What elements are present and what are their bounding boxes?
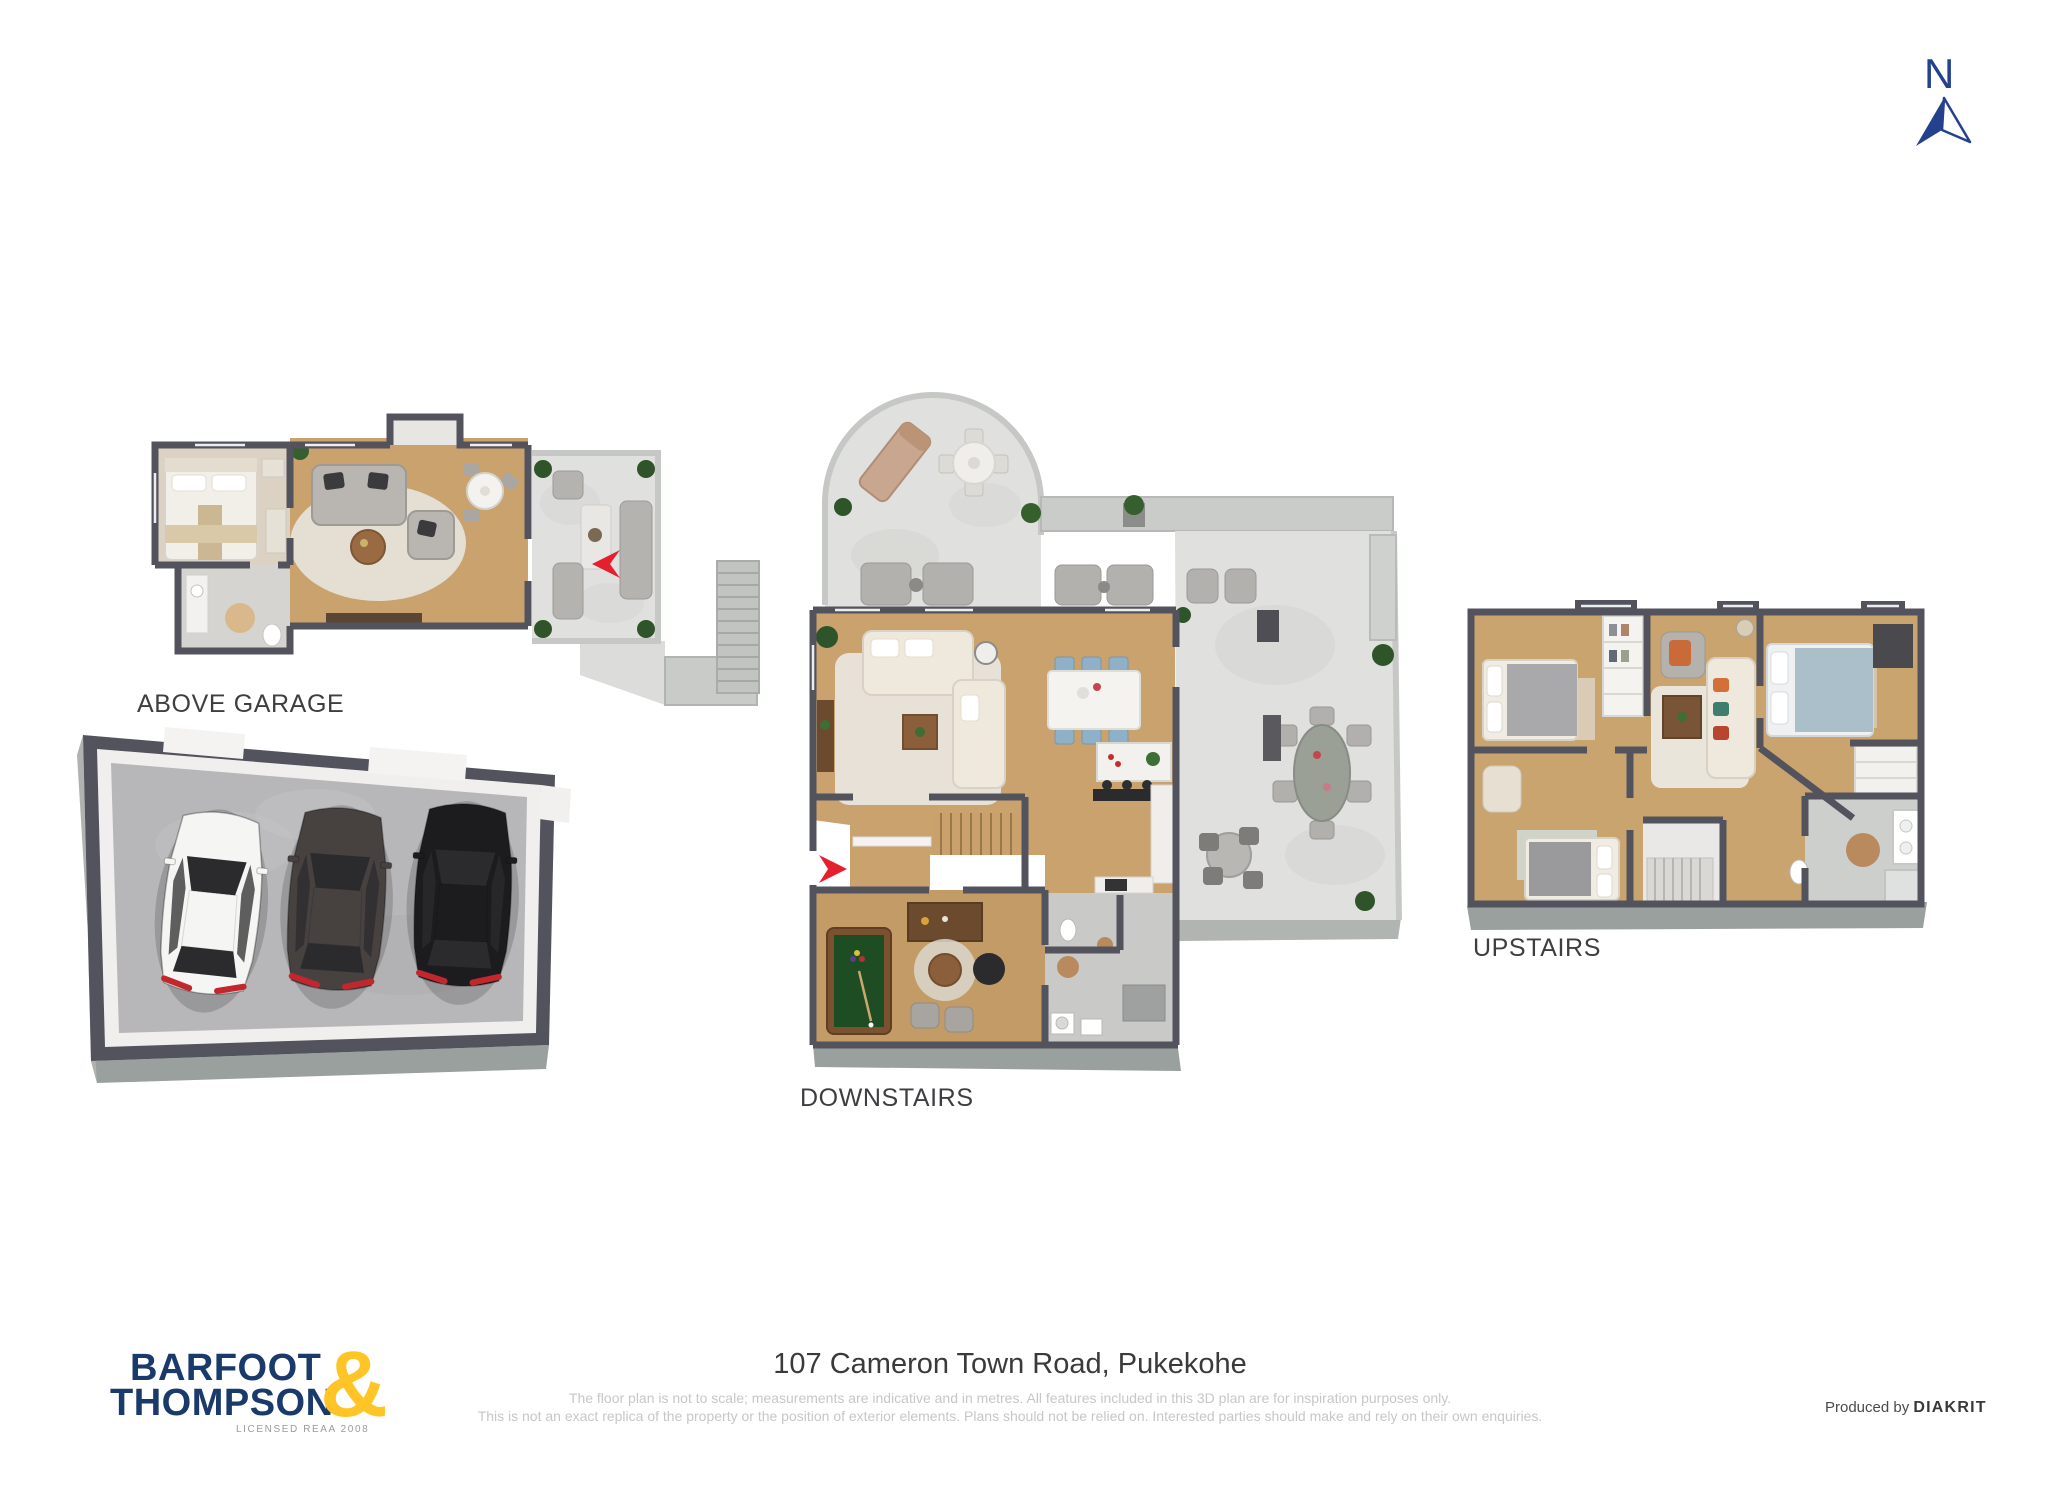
bean-bag (973, 953, 1005, 985)
cabinet (1873, 624, 1913, 668)
plant (637, 460, 655, 478)
produced-by-prefix: Produced by (1825, 1399, 1909, 1416)
upstairs-label: UPSTAIRS (1473, 934, 1601, 963)
wardrobe (1603, 616, 1643, 716)
floor-lamp (1736, 619, 1754, 637)
disclaimer-line-1: The floor plan is not to scale; measurem… (0, 1390, 2020, 1406)
logo-tagline: LICENSED REAA 2008 (236, 1424, 369, 1435)
pool-table (827, 928, 891, 1034)
bbq-grill (1257, 610, 1279, 642)
plan-base (1177, 918, 1401, 941)
producer-name: DIAKRIT (1913, 1399, 1986, 1416)
bed (1525, 838, 1619, 900)
outdoor-bench (1370, 535, 1396, 640)
floor-plan-page: { "compass": { "label": "N" }, "plans": … (0, 0, 2048, 1494)
bed (1483, 660, 1577, 740)
plant (1124, 495, 1144, 515)
entry-nook-floor (390, 417, 460, 445)
coffee-table (351, 530, 385, 564)
bed (1767, 644, 1873, 736)
armchair (408, 511, 454, 559)
armchair (1661, 632, 1705, 678)
sofa (312, 465, 406, 525)
retaining-wall (1041, 497, 1393, 531)
plant (1021, 503, 1041, 523)
plant (534, 460, 552, 478)
compass-north-label: N (1924, 50, 1954, 98)
dresser (266, 509, 286, 553)
walk-in-closet (1855, 746, 1917, 794)
plant (534, 620, 552, 638)
above-garage-label: ABOVE GARAGE (137, 690, 344, 719)
armchair (1483, 766, 1521, 812)
planter (1263, 715, 1281, 761)
plan-base (813, 1045, 1181, 1071)
armchair (945, 1007, 973, 1032)
plant (637, 620, 655, 638)
property-address: 107 Cameron Town Road, Pukekohe (0, 1348, 2020, 1381)
garage-floor-plan (75, 725, 575, 1090)
above-garage-floor-plan (140, 413, 770, 713)
armchair (911, 1003, 939, 1028)
entry-arrow-icon (819, 855, 847, 883)
dining-set (1048, 657, 1140, 744)
downstairs-floor-plan (805, 385, 1415, 1085)
console-table (817, 700, 834, 772)
north-arrow-icon (1908, 96, 1978, 152)
floor-clock (975, 642, 997, 664)
door-pier (539, 785, 571, 823)
disclaimer-line-2: This is not an exact replica of the prop… (0, 1408, 2020, 1424)
plant (834, 498, 852, 516)
upstairs-floor-plan (1455, 598, 1945, 943)
staircase (1647, 858, 1713, 902)
bedside-table (262, 459, 284, 477)
produced-by: Produced by DIAKRIT (1825, 1399, 1987, 1417)
bed (165, 458, 257, 560)
plant (816, 626, 838, 648)
plant (1355, 891, 1375, 911)
downstairs-label: DOWNSTAIRS (800, 1084, 974, 1113)
sofa (1707, 658, 1755, 778)
plant (1372, 644, 1394, 666)
game-table (929, 954, 961, 986)
